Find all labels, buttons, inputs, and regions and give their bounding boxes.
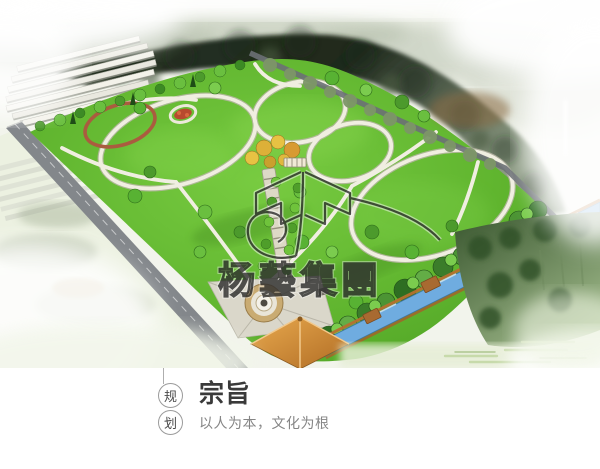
badge-circle-hua: 划: [158, 410, 183, 435]
colonnade-pavilion: [284, 158, 306, 167]
badge-circle-gui: 规: [158, 383, 183, 408]
section-subtitle: 以人为本，文化为根: [199, 414, 330, 432]
connector-line: [163, 368, 164, 384]
article-page: 杨藝集團 杨藝集團 规 划 宗旨 以人为本，文化为根: [0, 0, 600, 469]
watermark-text: 杨藝集團: [218, 259, 382, 302]
article-hero-image[interactable]: 杨藝集團 杨藝集團: [0, 0, 600, 368]
badge-char-bottom: 划: [164, 413, 177, 432]
caption-section: 规 划 宗旨 以人为本，文化为根: [0, 368, 600, 469]
park-rendering-scene: 杨藝集團 杨藝集團: [0, 0, 600, 368]
section-title: 宗旨: [199, 381, 251, 408]
badge-char-top: 规: [164, 386, 177, 405]
